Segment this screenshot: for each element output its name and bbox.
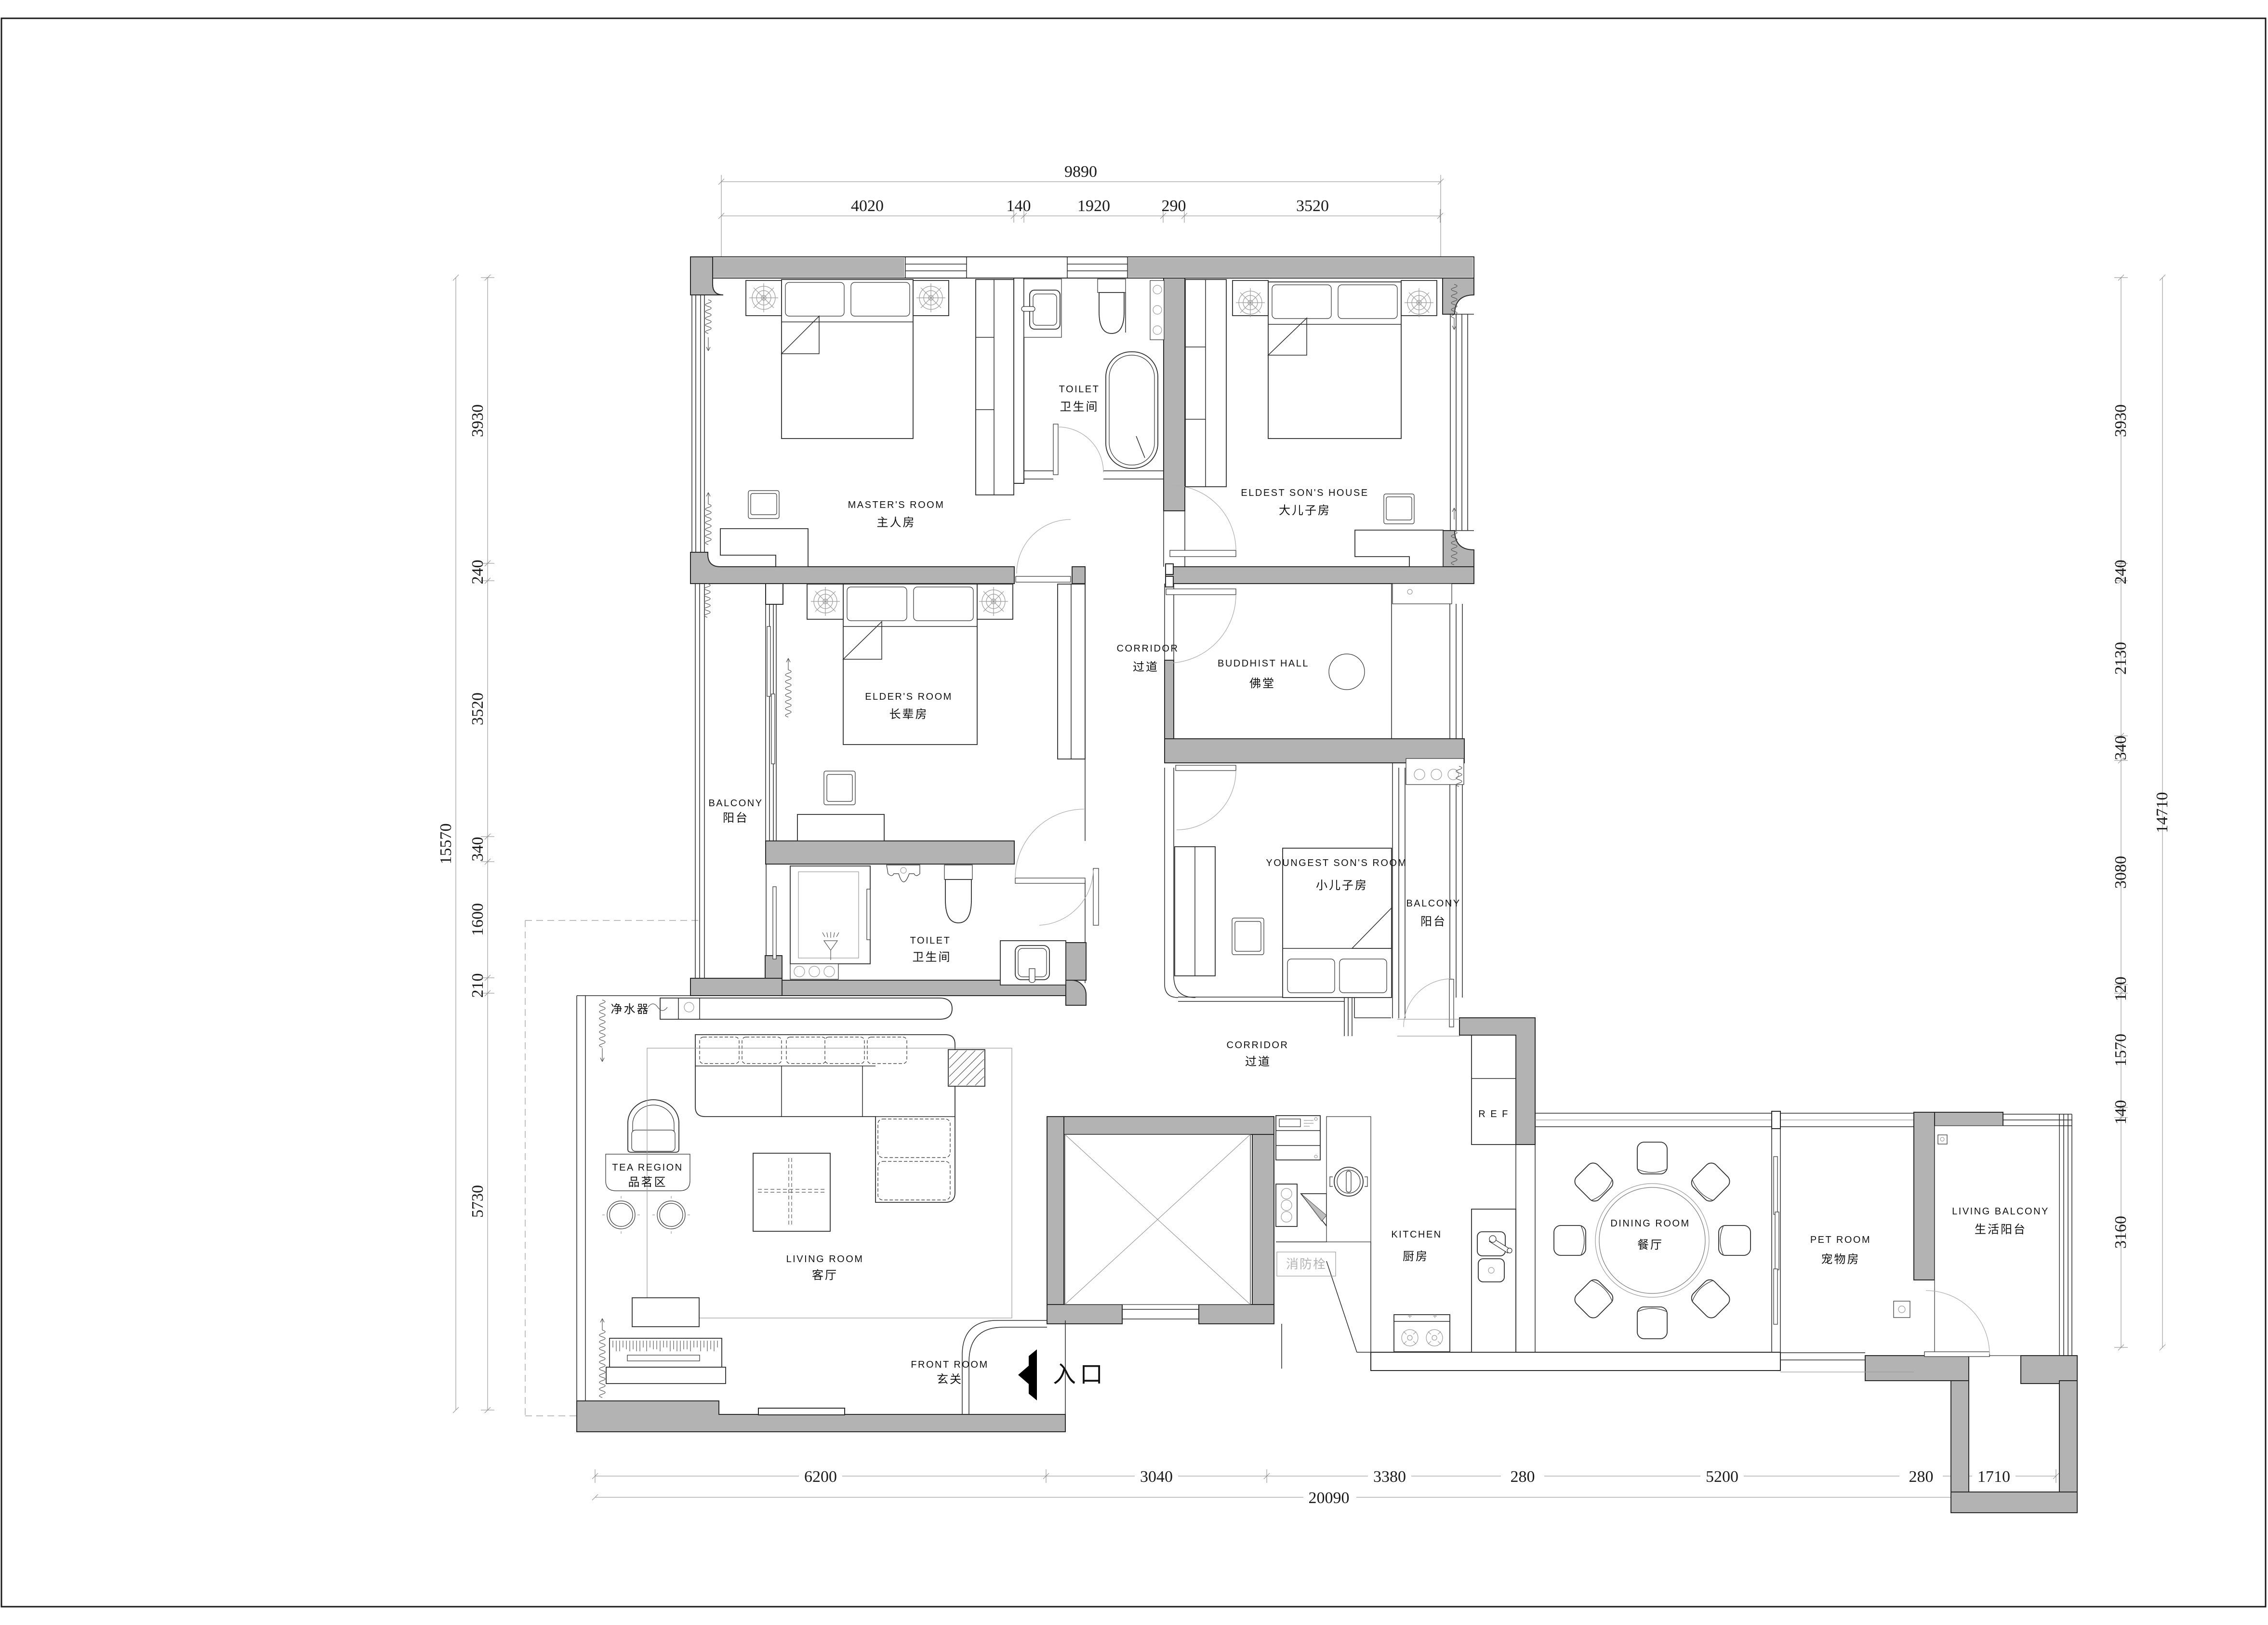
svg-text:290: 290 xyxy=(1162,197,1186,215)
svg-text:3080: 3080 xyxy=(2112,856,2130,889)
svg-text:ELDEST SON'S HOUSE: ELDEST SON'S HOUSE xyxy=(1241,488,1368,498)
svg-text:TEA REGION: TEA REGION xyxy=(612,1162,683,1173)
svg-text:9890: 9890 xyxy=(1064,163,1097,181)
svg-text:R E F: R E F xyxy=(1478,1109,1509,1119)
svg-text:PET ROOM: PET ROOM xyxy=(1810,1235,1871,1245)
svg-text:BALCONY: BALCONY xyxy=(1406,898,1460,909)
svg-text:客厅: 客厅 xyxy=(812,1269,838,1282)
svg-text:6200: 6200 xyxy=(804,1468,837,1486)
svg-text:YOUNGEST SON'S ROOM: YOUNGEST SON'S ROOM xyxy=(1266,858,1407,868)
svg-text:3930: 3930 xyxy=(2112,404,2130,437)
svg-text:过道: 过道 xyxy=(1133,661,1159,674)
svg-text:3930: 3930 xyxy=(469,404,487,437)
svg-text:2130: 2130 xyxy=(2112,642,2130,675)
svg-text:240: 240 xyxy=(469,560,487,585)
svg-text:净水器: 净水器 xyxy=(611,1003,650,1016)
svg-text:1570: 1570 xyxy=(2112,1034,2130,1066)
svg-text:140: 140 xyxy=(1007,197,1031,215)
svg-text:280: 280 xyxy=(1511,1468,1535,1486)
svg-text:CORRIDOR: CORRIDOR xyxy=(1227,1040,1289,1051)
svg-text:240: 240 xyxy=(2112,560,2130,585)
svg-text:20090: 20090 xyxy=(1309,1489,1350,1507)
svg-text:大儿子房: 大儿子房 xyxy=(1279,504,1331,517)
svg-text:340: 340 xyxy=(2112,736,2130,760)
svg-text:品茗区: 品茗区 xyxy=(628,1176,667,1189)
svg-text:入口: 入口 xyxy=(1053,1362,1107,1387)
svg-text:KITCHEN: KITCHEN xyxy=(1391,1229,1442,1240)
svg-text:BUDDHIST HALL: BUDDHIST HALL xyxy=(1218,658,1309,669)
svg-text:3520: 3520 xyxy=(469,693,487,725)
svg-text:1600: 1600 xyxy=(469,903,487,936)
svg-text:340: 340 xyxy=(469,837,487,862)
svg-text:宠物房: 宠物房 xyxy=(1821,1253,1860,1266)
svg-text:TOILET: TOILET xyxy=(910,935,951,946)
svg-text:ELDER'S ROOM: ELDER'S ROOM xyxy=(865,692,953,702)
svg-text:3160: 3160 xyxy=(2112,1216,2130,1249)
svg-text:卫生间: 卫生间 xyxy=(913,951,952,964)
svg-text:14710: 14710 xyxy=(2153,792,2171,833)
svg-text:卫生间: 卫生间 xyxy=(1060,400,1099,413)
svg-text:LIVING ROOM: LIVING ROOM xyxy=(786,1254,864,1265)
svg-text:长辈房: 长辈房 xyxy=(889,708,928,721)
svg-text:210: 210 xyxy=(469,973,487,998)
svg-text:阳台: 阳台 xyxy=(723,812,749,825)
svg-text:小儿子房: 小儿子房 xyxy=(1316,879,1368,892)
svg-text:5200: 5200 xyxy=(1706,1468,1738,1486)
svg-text:DINING ROOM: DINING ROOM xyxy=(1610,1218,1690,1229)
svg-text:3380: 3380 xyxy=(1373,1468,1406,1486)
svg-text:主人房: 主人房 xyxy=(877,516,916,529)
svg-text:140: 140 xyxy=(2112,1100,2130,1125)
svg-text:消防栓: 消防栓 xyxy=(1286,1257,1326,1271)
svg-text:15570: 15570 xyxy=(437,824,455,865)
svg-text:FRONT ROOM: FRONT ROOM xyxy=(911,1359,988,1370)
svg-text:阳台: 阳台 xyxy=(1420,915,1446,928)
svg-text:1710: 1710 xyxy=(1977,1468,2010,1486)
svg-text:120: 120 xyxy=(2112,977,2130,1001)
svg-text:佛堂: 佛堂 xyxy=(1249,677,1275,690)
svg-text:3040: 3040 xyxy=(1140,1468,1173,1486)
svg-text:MASTER'S ROOM: MASTER'S ROOM xyxy=(848,500,945,510)
svg-text:BALCONY: BALCONY xyxy=(708,798,763,809)
svg-text:玄关: 玄关 xyxy=(937,1373,963,1386)
svg-text:LIVING BALCONY: LIVING BALCONY xyxy=(1952,1206,2049,1217)
svg-text:过道: 过道 xyxy=(1245,1055,1271,1068)
svg-text:3520: 3520 xyxy=(1296,197,1329,215)
svg-text:280: 280 xyxy=(1909,1468,1934,1486)
svg-text:厨房: 厨房 xyxy=(1403,1250,1429,1263)
svg-text:4020: 4020 xyxy=(851,197,884,215)
svg-text:TOILET: TOILET xyxy=(1059,384,1100,395)
svg-text:餐厅: 餐厅 xyxy=(1637,1239,1663,1252)
svg-text:1920: 1920 xyxy=(1077,197,1110,215)
svg-text:5730: 5730 xyxy=(469,1185,487,1218)
svg-text:生活阳台: 生活阳台 xyxy=(1975,1223,2027,1236)
svg-text:CORRIDOR: CORRIDOR xyxy=(1117,643,1179,654)
